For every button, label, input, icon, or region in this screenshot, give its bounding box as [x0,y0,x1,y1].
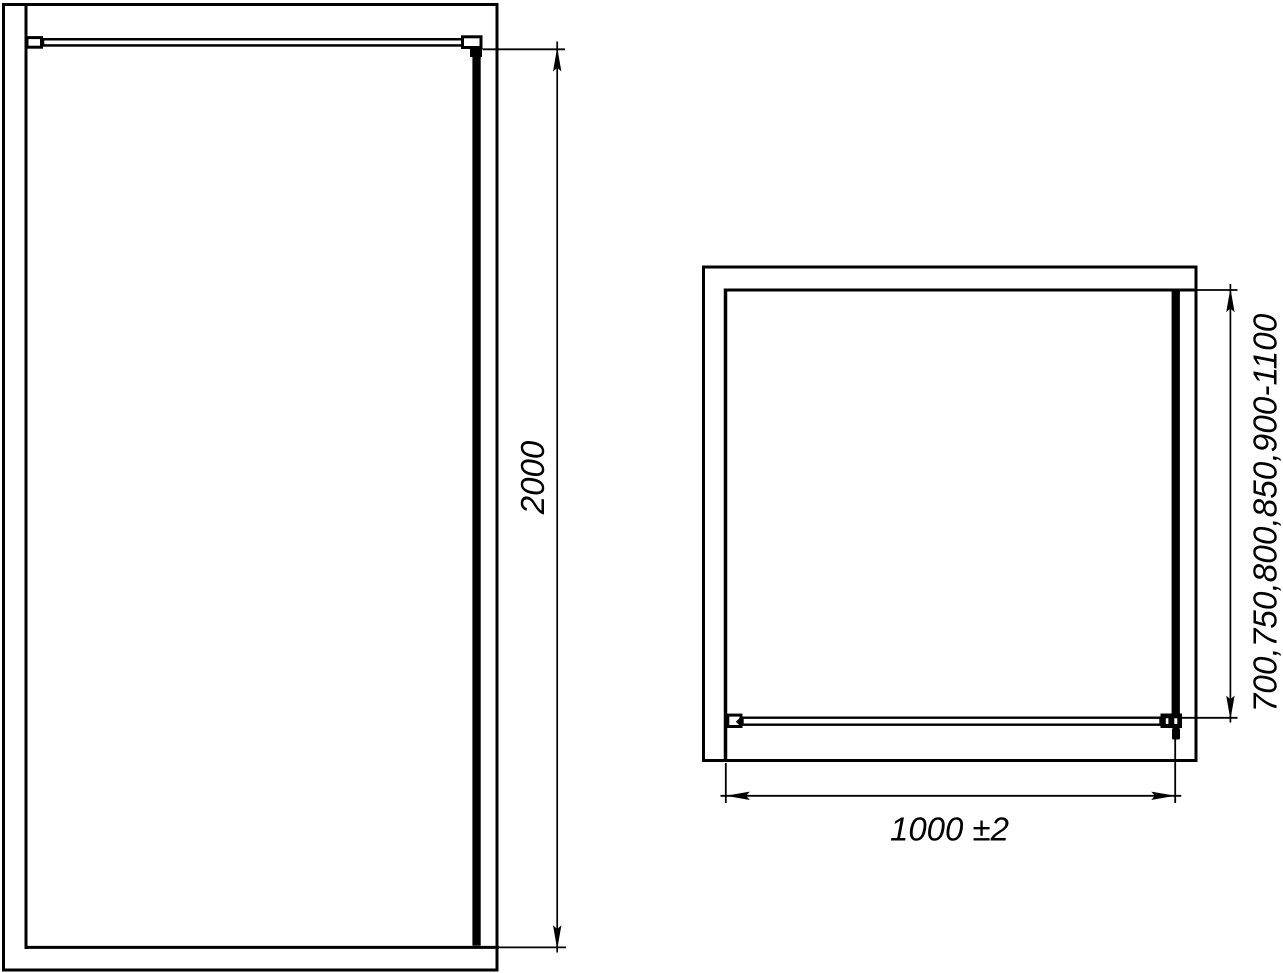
svg-text:1000 ±2: 1000 ±2 [890,811,1009,848]
svg-text:2000: 2000 [514,440,551,515]
svg-text:700,750,800,850,900-1100: 700,750,800,850,900-1100 [1248,313,1283,712]
